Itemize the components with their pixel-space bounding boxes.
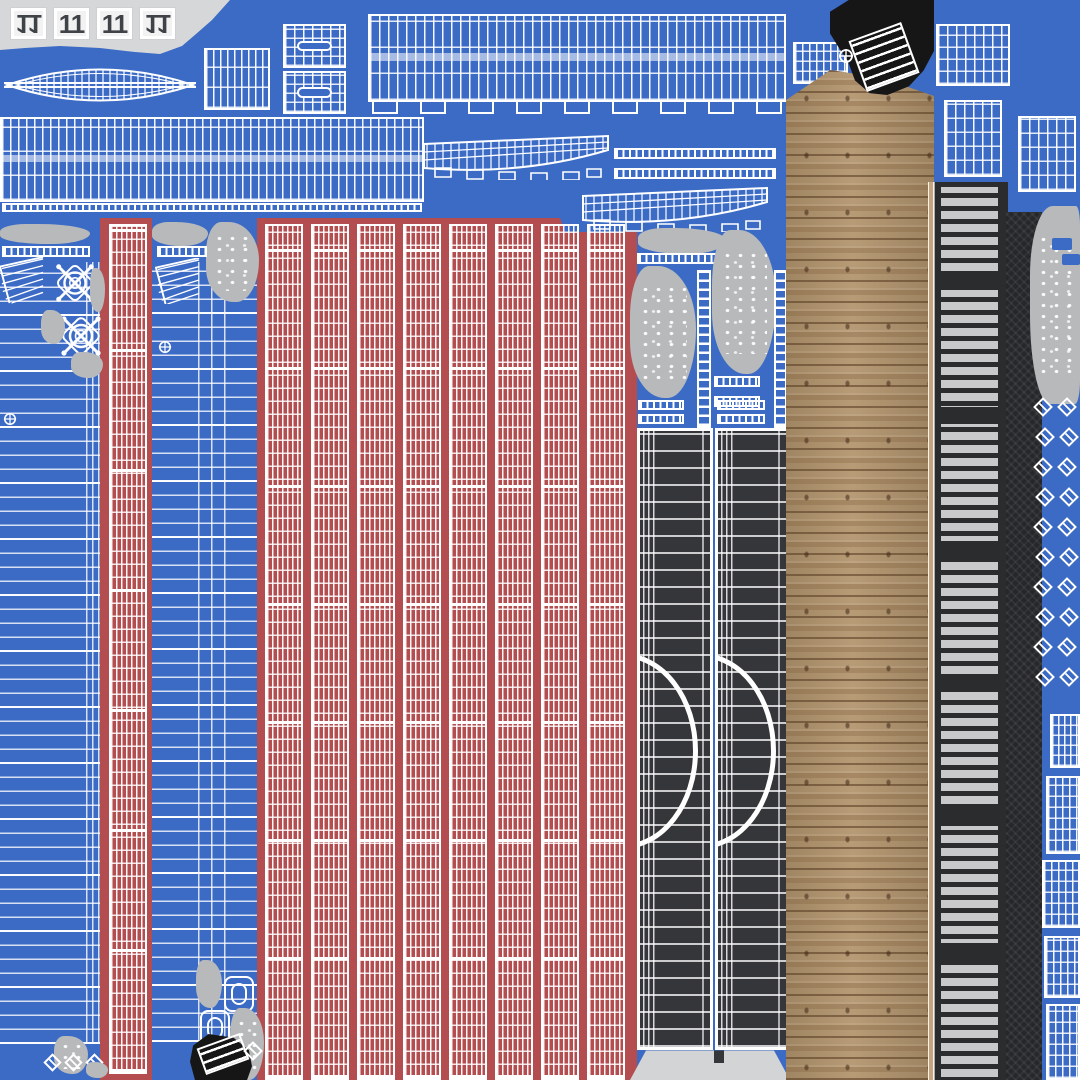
mid-speckle-blob-left xyxy=(630,266,696,398)
red-left-grid xyxy=(109,224,147,1074)
band-tab xyxy=(420,100,446,114)
right-grid-stack-2 xyxy=(1046,776,1080,854)
dark-deck-column-right xyxy=(715,428,789,1050)
hull-b-bottom-blob-1 xyxy=(196,960,222,1008)
boot-ring xyxy=(838,48,854,64)
red-stripe-col-3 xyxy=(357,224,395,1080)
top-wide-plank-band xyxy=(368,14,786,102)
hull-a-cloud-row xyxy=(0,224,90,244)
diamond-mark xyxy=(43,1053,61,1071)
right-grid-stack-3 xyxy=(1042,860,1080,928)
diamond-mark xyxy=(1059,547,1079,567)
red-stripe-col-5 xyxy=(449,224,487,1080)
number-tile-4: 11 xyxy=(139,7,176,40)
band-tab xyxy=(708,100,734,114)
wood-plank-column xyxy=(786,70,934,1080)
band-tab xyxy=(564,100,590,114)
grid-island-d xyxy=(944,100,1002,177)
hull-b-diamond xyxy=(246,1044,266,1064)
red-stripe-col-6 xyxy=(495,224,533,1080)
grid-island-a xyxy=(204,48,270,110)
grid-island-oval-bottom xyxy=(283,71,346,114)
diamond-mark xyxy=(1035,487,1055,507)
diamond-mark xyxy=(1035,667,1055,687)
right-blue-chip-2 xyxy=(1062,254,1080,265)
diamond-mark xyxy=(1033,637,1053,657)
diamond-mark xyxy=(1059,667,1079,687)
grid-island-e xyxy=(1018,116,1076,192)
diamond-mark xyxy=(1059,607,1079,627)
right-gray-blob xyxy=(1030,206,1080,404)
diamond-mark xyxy=(1033,397,1053,417)
diamond-mark xyxy=(1059,487,1079,507)
hull-side-a-edge xyxy=(86,262,100,1042)
right-grid-stack-1 xyxy=(1050,714,1080,768)
red-stripe-col-8 xyxy=(587,224,625,1080)
right-blue-chip-1 xyxy=(1052,238,1072,250)
mid-ladder-right xyxy=(774,270,787,428)
band-tab xyxy=(660,100,686,114)
transom-shape xyxy=(630,1048,790,1080)
hull-b-ruler xyxy=(157,246,207,257)
top-band-tabs xyxy=(372,100,782,114)
hull-a-blob-1 xyxy=(90,268,105,312)
red-stripe-col-4 xyxy=(403,224,441,1080)
diamond-mark xyxy=(1035,427,1055,447)
dark-slat-column xyxy=(934,182,1008,1080)
hatch-frame-1 xyxy=(224,976,254,1012)
hull-side-b-seam xyxy=(198,262,236,1042)
tile-label: 11 xyxy=(16,11,42,37)
band-tab xyxy=(372,100,398,114)
mid-cloud-row xyxy=(638,228,726,254)
left-band-tick-strip xyxy=(2,203,422,212)
grid-island-c xyxy=(936,24,1010,86)
right-grid-stack-4 xyxy=(1044,936,1080,998)
red-stripe-col-1 xyxy=(265,224,303,1080)
mid-ruler-e xyxy=(717,400,765,410)
grid-island-oval-top xyxy=(283,24,346,68)
diamond-mark xyxy=(1033,517,1053,537)
hull-a-fan xyxy=(0,256,44,304)
red-stripe-col-2 xyxy=(311,224,349,1080)
tile-label: 11 xyxy=(59,11,85,37)
hull-bottom-lens xyxy=(4,52,196,118)
red-stripe-col-7 xyxy=(541,224,579,1080)
diamond-mark xyxy=(243,1041,263,1061)
band-tab xyxy=(612,100,638,114)
diamond-mark xyxy=(1057,637,1077,657)
hull-b-cloud-row xyxy=(152,222,208,246)
uv-texture-atlas: 11 11 11 11 xyxy=(0,0,1080,1080)
diamond-mark xyxy=(1035,607,1055,627)
tile-label: 11 xyxy=(102,11,128,37)
mid-ruler-a xyxy=(714,376,760,387)
hull-a-ring xyxy=(3,412,17,426)
hull-b-big-blob xyxy=(206,222,259,302)
band-tab xyxy=(516,100,542,114)
mid-speckle-blob-right xyxy=(712,230,776,374)
hull-b-fan xyxy=(155,258,201,304)
number-tile-1: 11 xyxy=(10,7,47,40)
mid-ladder-left xyxy=(697,270,711,428)
diamond-mark xyxy=(1057,577,1077,597)
thin-strip-a xyxy=(614,148,776,159)
diamond-mark xyxy=(1033,577,1053,597)
diamond-mark xyxy=(1059,427,1079,447)
dark-deck-column-left xyxy=(637,428,713,1050)
diamond-mark xyxy=(1057,397,1077,417)
diamond-mark xyxy=(1057,517,1077,537)
right-grid-stack-5 xyxy=(1046,1004,1080,1080)
diamond-mark xyxy=(1057,457,1077,477)
mid-ruler-top xyxy=(637,253,725,264)
diamond-mark xyxy=(64,1053,82,1071)
number-tile-2: 11 xyxy=(53,7,90,40)
mid-ruler-d xyxy=(638,414,684,424)
band-tab xyxy=(756,100,782,114)
number-tile-3: 11 xyxy=(96,7,133,40)
tile-label: 11 xyxy=(145,11,171,37)
hull-b-ring xyxy=(158,340,172,354)
diamond-mark xyxy=(1033,457,1053,477)
band-tab xyxy=(468,100,494,114)
right-diamond-strip xyxy=(1036,400,1080,704)
mid-ruler-f xyxy=(717,414,765,424)
diamond-mark xyxy=(1035,547,1055,567)
thin-strip-b xyxy=(614,168,776,179)
hull-profile-a xyxy=(421,132,611,180)
mid-ruler-c xyxy=(638,400,684,410)
hull-a-bottom-blob-2 xyxy=(86,1062,108,1078)
hull-a-blob-2 xyxy=(41,310,65,344)
left-long-plank-band xyxy=(0,117,424,202)
hull-a-blob-3 xyxy=(71,352,103,378)
